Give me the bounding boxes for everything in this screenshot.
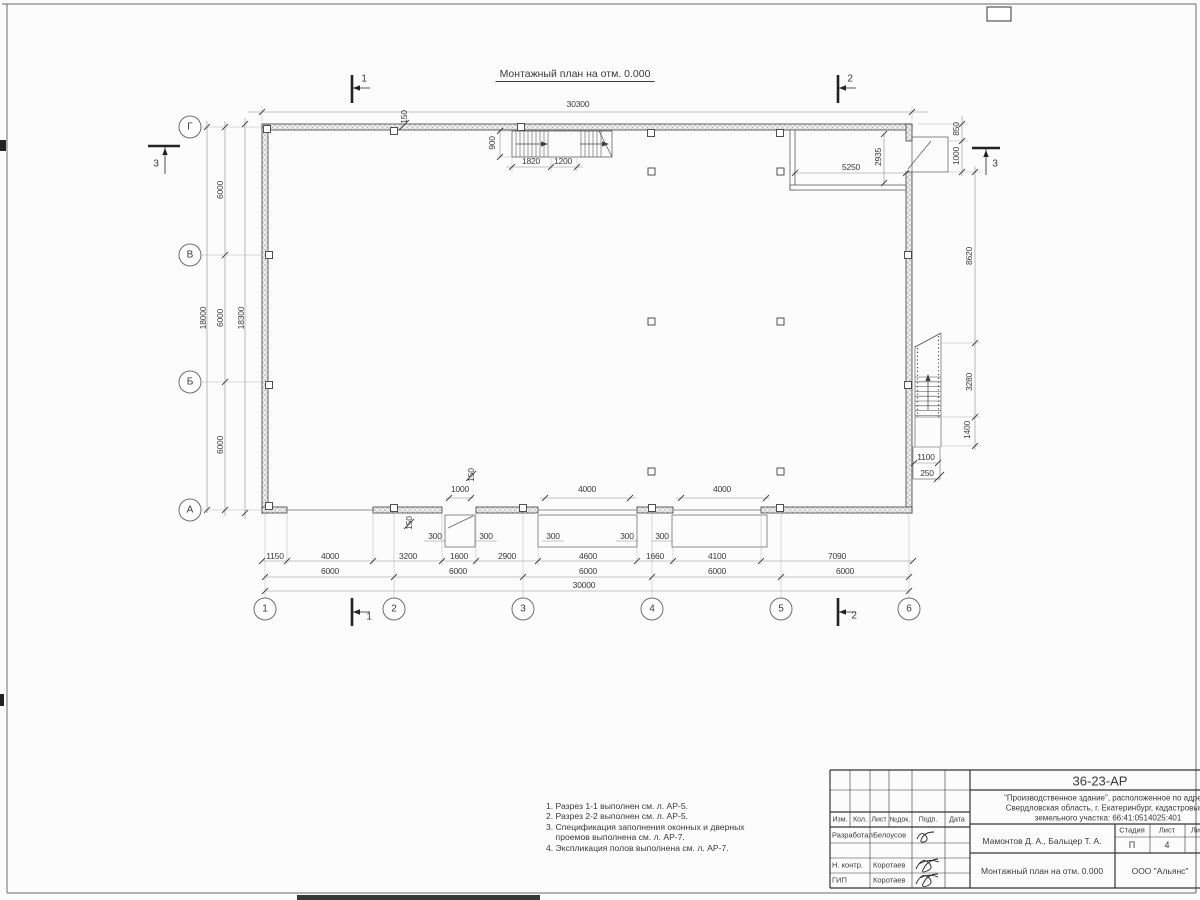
wall-bottom-2 [373, 507, 442, 513]
dim-label: 6000 [579, 566, 597, 576]
dim-label: 150 [404, 516, 414, 530]
dim-label: 4000 [321, 551, 339, 561]
wall-right-lower [906, 172, 912, 513]
section-label: 1 [366, 612, 371, 623]
axis-bubble: 2 [383, 598, 406, 621]
axis-bubble: Б [179, 371, 202, 394]
section-label: 3 [992, 159, 997, 170]
signature-1 [917, 832, 934, 842]
col-header-list: Лист [871, 817, 886, 824]
wall-top [262, 124, 912, 130]
interior-columns [648, 168, 784, 475]
room-wall-bottom [790, 185, 906, 190]
signature-3 [916, 874, 938, 887]
stage-value: П [1129, 840, 1135, 850]
pilasters [264, 124, 912, 512]
dim-label: 18300 [236, 307, 246, 330]
name-korotaev-1: Коротаев [873, 861, 905, 870]
col-header-izm: Изм. [833, 817, 848, 824]
dim-label: 30000 [573, 580, 596, 590]
extension-lines [201, 106, 981, 598]
dim-label: 1600 [450, 551, 468, 561]
signature-2 [916, 859, 939, 872]
dim-label: 6000 [449, 566, 467, 576]
porch-gate-2 [672, 515, 767, 547]
sheet-frame [2, 4, 1196, 893]
sheet-number: 4 [1164, 840, 1169, 850]
porch-top-right [908, 137, 948, 172]
dim-label: 6000 [215, 436, 225, 454]
section-label: 1 [361, 74, 366, 85]
bottom-porches [445, 515, 767, 547]
axis-bubble: 6 [898, 598, 921, 621]
dim-label: 6000 [836, 566, 854, 576]
authors: Мамонтов Д. А., Бальцер Т. А. [982, 836, 1101, 846]
stair-arrow-2 [602, 141, 609, 146]
stage-label: Стадия [1119, 826, 1145, 835]
dim-label: 3280 [964, 373, 974, 391]
frame-corner-box [987, 7, 1011, 21]
dim-label: 1820 [522, 156, 540, 166]
sheet-label: Лист [1159, 826, 1175, 835]
name-belousov: Белоусов [873, 831, 906, 840]
wall-left [262, 124, 268, 513]
dim-label: 6000 [215, 309, 225, 327]
project-description-2: Свердловская область, г. Екатеринбург, к… [1006, 804, 1200, 813]
dim-label: 900 [487, 136, 497, 150]
company-name: ООО "Альянс" [1132, 866, 1189, 876]
dim-label: 300 [620, 531, 634, 541]
drawing-sheet: Монтажный план на отм. 0.000 30300150900… [0, 0, 1200, 900]
dim-label: 1000 [451, 484, 469, 494]
axis-bubble: 3 [512, 598, 535, 621]
col-header-kol: Кол. [853, 817, 867, 824]
dim-label: 5250 [842, 162, 860, 172]
dim-label: 150 [399, 110, 409, 124]
dim-label: 2935 [873, 148, 883, 166]
dim-label: 6000 [708, 566, 726, 576]
role-n-kontr: Н. контр. [832, 861, 863, 870]
dim-label: 300 [428, 531, 442, 541]
door-recess [445, 515, 475, 547]
dim-label: 6000 [215, 181, 225, 199]
dim-label: 4600 [579, 551, 597, 561]
dim-label: 3200 [399, 551, 417, 561]
role-razrabotal: Разработал [832, 831, 873, 840]
dim-label: 1400 [962, 421, 972, 439]
dim-label: 4100 [708, 551, 726, 561]
door-leaf-right [908, 141, 931, 169]
section-label: 3 [153, 159, 158, 170]
stair-top [512, 131, 612, 157]
note-line: проемов выполнена см. л. АР-7. [546, 832, 745, 842]
role-gip: ГИП [832, 876, 847, 885]
plan-geometry [0, 0, 1200, 900]
col-header-ndoc: №док. [890, 817, 911, 824]
axis-bubble: 5 [770, 598, 793, 621]
dim-label: 1100 [917, 452, 934, 462]
plan-title: Монтажный план на отм. 0.000 [496, 68, 655, 82]
dim-label: 7090 [828, 551, 846, 561]
wall-bottom-3 [476, 507, 538, 513]
dim-label: 1150 [266, 551, 283, 561]
dim-label: 30300 [567, 99, 590, 109]
room-wall-left [790, 130, 795, 190]
section-label: 2 [847, 74, 852, 85]
dim-label: 300 [479, 531, 493, 541]
door-leaf-bottom [448, 516, 473, 528]
dim-label: 300 [546, 531, 560, 541]
dim-label: 1000 [951, 147, 961, 165]
stair-right-arrow [925, 374, 930, 381]
col-header-data: Дата [949, 817, 965, 824]
section-arrows [162, 85, 988, 614]
note-line: 1. Разрез 1-1 выполнен см. л. АР-5. [546, 801, 745, 811]
doc-number: 36-23-АР [1073, 774, 1128, 789]
dimension-lines [207, 112, 975, 591]
dim-label: 6000 [321, 566, 339, 576]
signatures [916, 832, 939, 887]
dim-label: 1660 [646, 551, 664, 561]
dim-label: 18000 [198, 307, 208, 330]
dim-label: 4000 [578, 484, 596, 494]
axis-bubble: В [179, 244, 202, 267]
stair-arrow-1 [541, 141, 548, 146]
name-korotaev-2: Коротаев [873, 876, 905, 885]
note-line: 2. Разрез 2-2 выполнен см. л. АР-5. [546, 811, 745, 821]
exterior-walls [262, 124, 912, 513]
dimension-ticks [204, 109, 978, 594]
notes-block: 1. Разрез 1-1 выполнен см. л. АР-5.2. Ра… [546, 801, 745, 853]
project-description-1: "Производственное здание", расположенное… [1004, 794, 1200, 803]
dim-label: 1200 [554, 156, 572, 166]
axis-bubble: Г [179, 116, 202, 139]
dim-label: 150 [466, 468, 476, 482]
col-header-podp: Подп. [919, 817, 938, 824]
dim-label: 300 [655, 531, 669, 541]
note-line: 4. Экспликация полов выполнена см. л. АР… [546, 843, 745, 853]
axis-bubble: 4 [641, 598, 664, 621]
note-line: 3. Спецификация заполнения оконных и две… [546, 822, 745, 832]
dim-label: 850 [951, 122, 961, 136]
interior-room [790, 130, 906, 190]
dim-label: 4000 [713, 484, 731, 494]
section-label: 2 [851, 611, 856, 622]
dim-label: 8620 [964, 247, 974, 265]
axis-bubble: А [179, 499, 202, 522]
drawing-title: Монтажный план на отм. 0.000 [981, 866, 1103, 876]
wall-right-upper [906, 124, 912, 141]
dim-label: 2900 [498, 551, 516, 561]
dim-label: 250 [920, 468, 934, 478]
axis-bubble: 1 [254, 598, 277, 621]
project-description-3: земельного участка: 66:41:0514025:401 [1035, 814, 1182, 823]
sheets-label: Листов [1191, 826, 1200, 835]
